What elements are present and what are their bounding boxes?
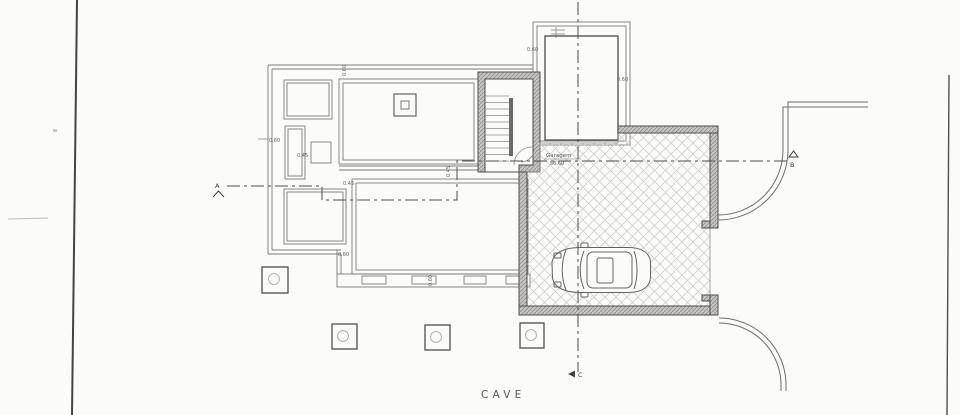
footing-column [520,323,544,348]
dim-label: 0.45 [297,153,308,159]
door-swing-garage [521,149,534,162]
footing-column [425,325,450,350]
floor-plan-drawing: Garagem 56.60 [0,0,960,415]
dim-label: 0.60 [342,65,348,76]
section-marker-b: B [789,151,798,169]
room-large-lower [352,179,528,274]
garage-room-label: Garagem [546,153,572,159]
column [394,94,416,116]
room-top-left [284,80,332,119]
dim-label: 0.60 [617,77,628,83]
dim-label: 0.60 [527,47,538,53]
dim-label: 0.60 [338,252,349,258]
stair-treads [485,96,509,161]
section-arrow-b [789,151,798,157]
car [552,243,651,297]
section-label-c: C [578,371,583,379]
footing-column [262,267,288,293]
lightwell-outline [533,22,630,145]
section-arrow-c [568,371,575,378]
garage-area-label: 56.60 [550,161,564,167]
dim-label: 0.45 [446,166,452,177]
stairwell [478,72,540,172]
drawing-title: CAVE [481,389,525,401]
room-large-upper [339,79,478,164]
footing-column [332,324,357,349]
driveway-curve-lower [719,318,786,391]
paper-edge-marks [8,0,949,415]
car-body [552,248,651,293]
driveway-curves [718,102,868,391]
room-small [311,142,331,163]
room-lower-left [284,189,346,244]
section-label-b: B [790,161,794,169]
stair-stringer [509,98,513,156]
section-marker-a: A [213,182,224,197]
section-marker-c: C [568,371,583,380]
footing-columns [262,267,544,350]
dim-label: 0.45 [343,181,354,187]
dim-label: 0.60 [269,138,280,144]
lightwell-inner-wall [545,36,618,140]
dim-label: 0.60 [428,275,434,286]
section-arrow-a [213,191,224,197]
door-swing-stair [514,147,532,165]
scanned-floor-plan-page: Garagem 56.60 [0,0,960,415]
section-label-a: A [215,182,220,190]
